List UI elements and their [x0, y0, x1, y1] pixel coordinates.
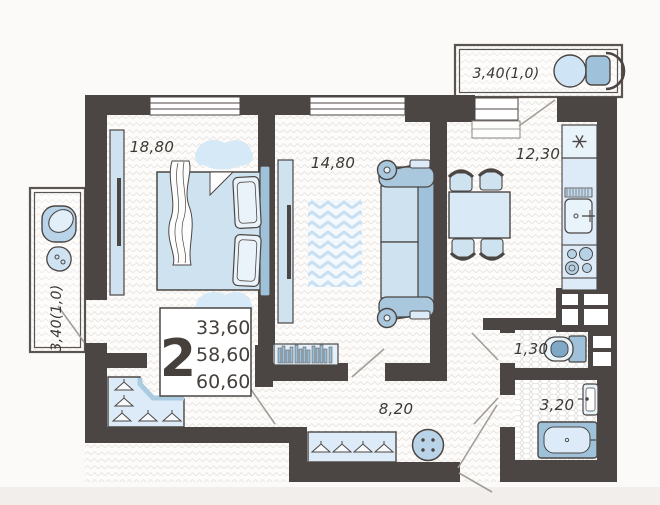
- sofa-backrest: [416, 178, 434, 306]
- bedroom-window: [150, 97, 240, 115]
- sofa-seat-1: [381, 186, 418, 242]
- bathroom-area-label: 3,20: [540, 396, 575, 414]
- floor-plan-canvas: 18,80 14,80 12,30 8,20 1,30 3,20 3,40(1,…: [0, 0, 660, 505]
- living-tv: [287, 205, 291, 279]
- kitchen-sink: [565, 199, 595, 233]
- coat-rack: [308, 432, 396, 462]
- dining-chair: [451, 239, 475, 259]
- balcony-side-table: [47, 247, 71, 271]
- bed-throw: [169, 161, 192, 265]
- dining-chair: [479, 170, 503, 190]
- bedroom-rug: [195, 140, 253, 170]
- living-window: [310, 97, 405, 115]
- sofa-seat-2: [381, 242, 418, 298]
- bed-headboard: [260, 166, 270, 296]
- toilet-fixture: [544, 336, 586, 362]
- total-area-value: 60,60: [196, 371, 250, 393]
- rooms-count: 2: [160, 329, 196, 389]
- balcony-left-area-label: 3,40(1,0): [49, 284, 65, 351]
- kitchen-balcony-window: [472, 98, 520, 138]
- dining-chair: [449, 171, 473, 191]
- living-area-value: 33,60: [196, 317, 250, 339]
- bookshelf: [274, 344, 338, 365]
- living-rug: [308, 200, 362, 287]
- kitchen-area-label: 12,30: [516, 145, 560, 163]
- toilet-area-label: 1,30: [514, 340, 549, 358]
- dish-drainer: [565, 188, 592, 197]
- bathtub: [538, 422, 597, 458]
- floor-plan: 18,80 14,80 12,30 8,20 1,30 3,20 3,40(1,…: [0, 0, 660, 505]
- living-area-label: 14,80: [311, 154, 355, 172]
- balcony-chair: [586, 56, 610, 85]
- balcony-top-area-label: 3,40(1,0): [472, 66, 539, 82]
- fridge: [562, 125, 597, 158]
- balcony-round-table: [554, 55, 586, 87]
- summary-box: 2 33,60 58,60 60,60: [160, 308, 251, 396]
- pouf: [413, 430, 444, 461]
- dining-table: [449, 192, 510, 238]
- sofa: [379, 167, 434, 317]
- bedroom-tv: [117, 178, 121, 246]
- area-no-balcony-value: 58,60: [196, 344, 250, 366]
- bedroom-area-label: 18,80: [130, 138, 174, 156]
- dining-chair: [480, 239, 504, 259]
- stove: [562, 245, 597, 278]
- hallway-area-label: 8,20: [379, 400, 414, 418]
